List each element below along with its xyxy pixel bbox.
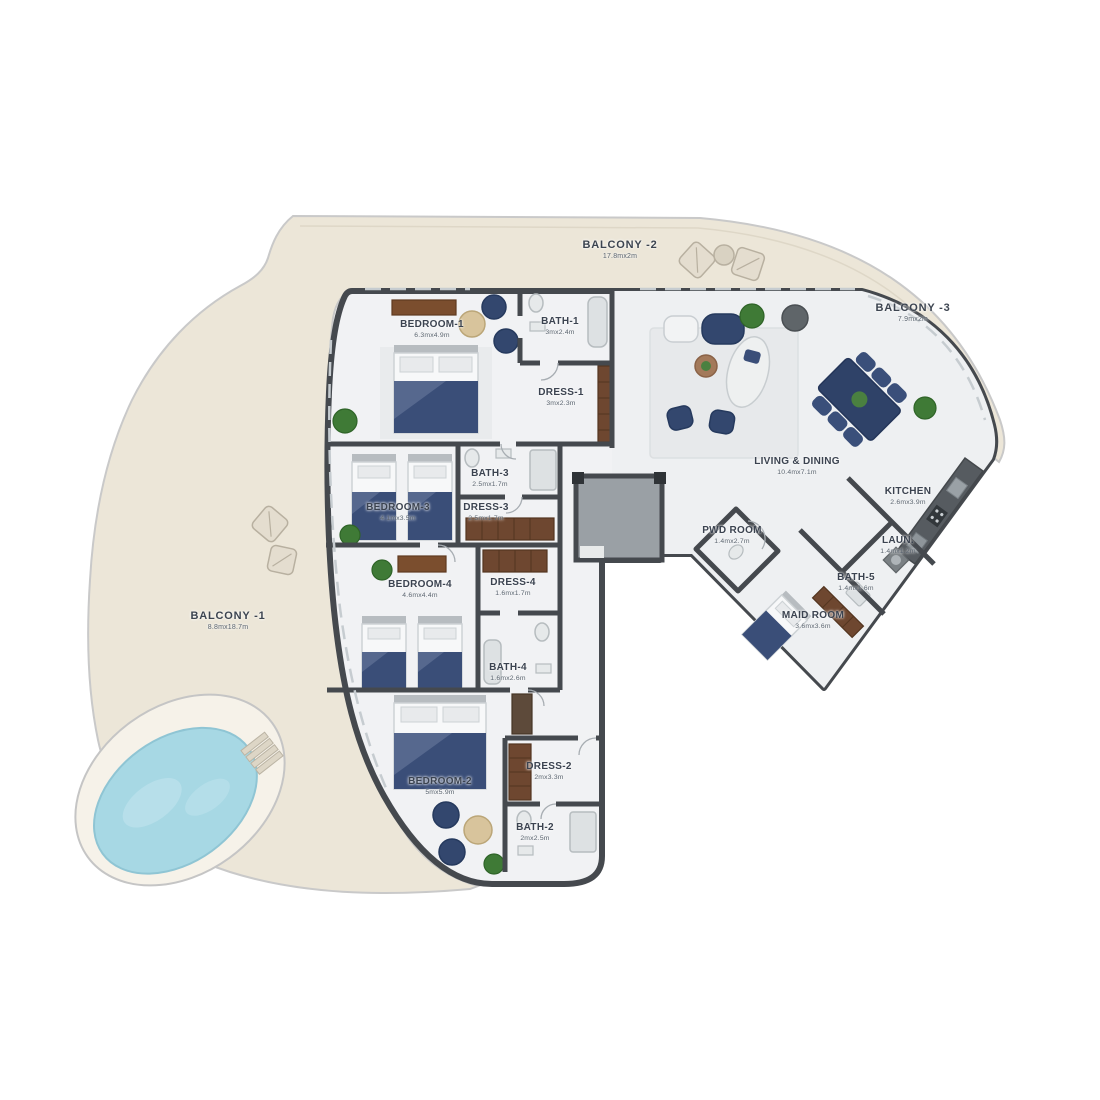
bed-twin bbox=[408, 454, 452, 540]
bathtub bbox=[588, 297, 607, 347]
shower bbox=[530, 450, 556, 490]
toilet bbox=[529, 294, 543, 312]
terrace-table bbox=[714, 245, 734, 265]
entry-foyer bbox=[572, 472, 666, 560]
sink bbox=[536, 664, 551, 673]
dress-3-closet bbox=[466, 518, 554, 540]
dresser bbox=[398, 556, 446, 572]
wardrobe bbox=[512, 694, 532, 734]
sink bbox=[518, 846, 533, 855]
armchair bbox=[439, 839, 465, 865]
floor-plan-canvas bbox=[0, 0, 1100, 1100]
floor-plan-page: BALCONY -18.8mx18.7mBALCONY -217.8mx2mBA… bbox=[0, 0, 1100, 1100]
bed-twin bbox=[418, 616, 462, 688]
armchair bbox=[433, 802, 459, 828]
armchair bbox=[708, 409, 735, 435]
bedroom-3-furniture bbox=[340, 454, 452, 545]
shower bbox=[570, 812, 596, 852]
toilet bbox=[465, 449, 479, 467]
bathtub bbox=[484, 640, 501, 684]
bed-bedroom-2 bbox=[394, 695, 486, 789]
plant-icon bbox=[484, 854, 504, 874]
rug bbox=[650, 328, 798, 458]
plant-icon bbox=[333, 409, 357, 433]
planter bbox=[782, 305, 808, 331]
bed-twin bbox=[352, 454, 396, 540]
chaise bbox=[664, 316, 698, 342]
plant-icon bbox=[340, 525, 360, 545]
armchair bbox=[482, 295, 506, 319]
toilet bbox=[535, 623, 549, 641]
sofa bbox=[702, 314, 744, 344]
sink bbox=[530, 322, 545, 331]
bed-twin bbox=[362, 616, 406, 688]
plant-icon bbox=[372, 560, 392, 580]
side-table bbox=[459, 311, 485, 337]
dress-4-closet bbox=[483, 550, 547, 572]
bed-bedroom-1 bbox=[394, 345, 478, 433]
dresser bbox=[392, 300, 456, 315]
toilet bbox=[517, 811, 531, 829]
dress-2-closet bbox=[509, 744, 531, 800]
side-table bbox=[464, 816, 492, 844]
dress-1-closet bbox=[598, 366, 611, 442]
plant-icon bbox=[914, 397, 936, 419]
armchair bbox=[494, 329, 518, 353]
plant-icon bbox=[740, 304, 764, 328]
